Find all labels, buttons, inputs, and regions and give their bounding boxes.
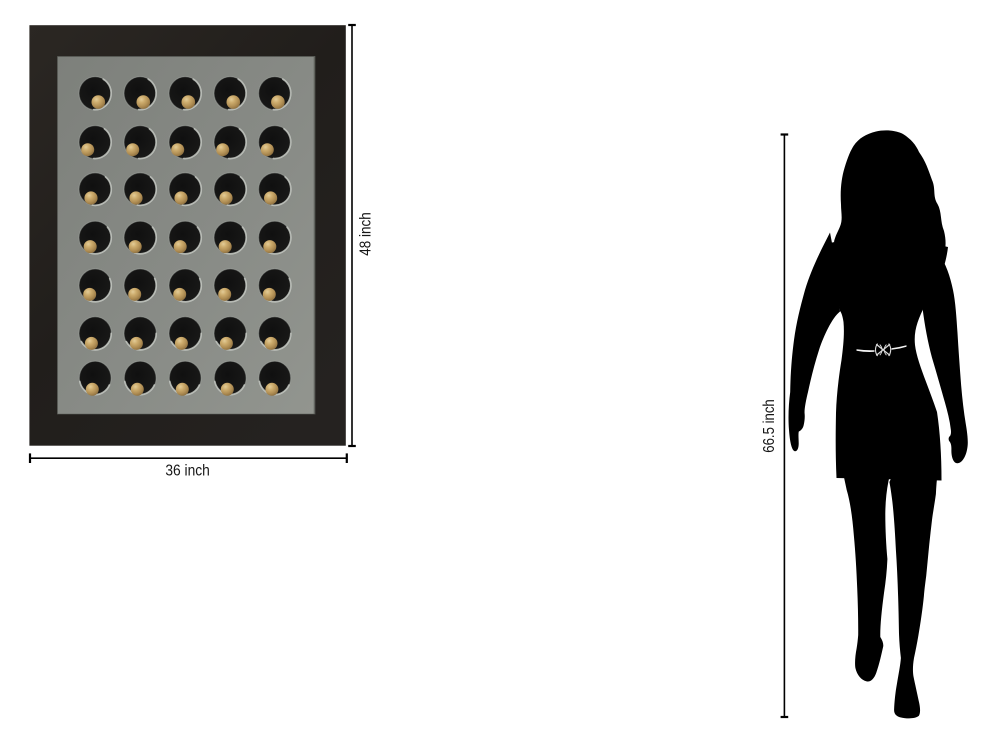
svg-text:66.5 inch: 66.5 inch: [761, 399, 778, 453]
svg-text:48 inch: 48 inch: [358, 212, 375, 256]
svg-text:36 inch: 36 inch: [165, 463, 210, 480]
